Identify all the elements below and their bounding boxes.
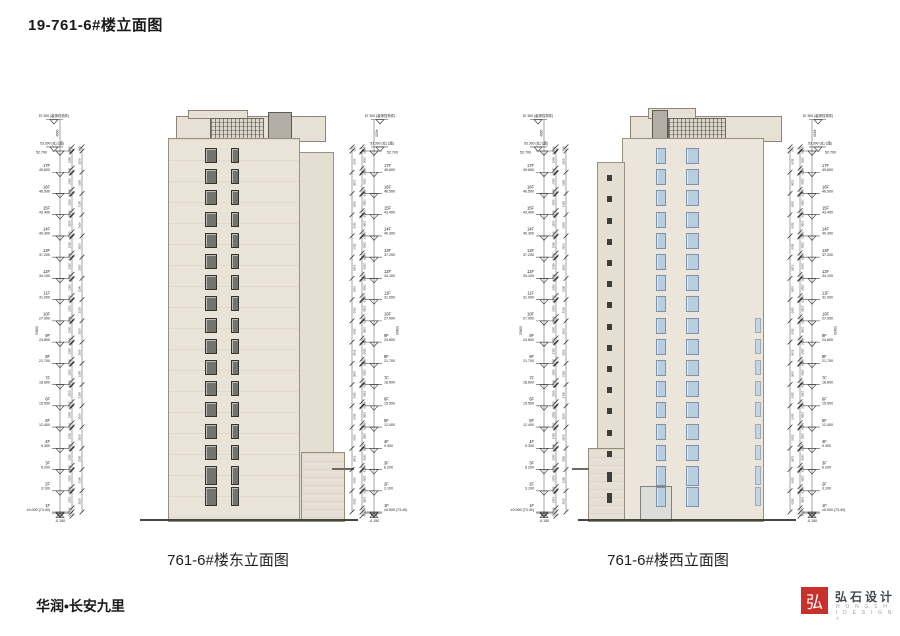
window [607,493,612,503]
svg-text:150: 150 [801,277,805,282]
svg-text:150: 150 [552,467,556,472]
svg-text:52.700: 52.700 [825,151,836,155]
window [755,360,761,375]
svg-text:2350: 2350 [68,496,72,503]
svg-text:49.600: 49.600 [523,168,534,172]
svg-text:6.200: 6.200 [822,465,831,469]
svg-text:2350: 2350 [68,411,72,418]
svg-text:2350: 2350 [552,178,556,185]
window [755,318,761,333]
window [755,466,761,485]
svg-text:3100: 3100 [791,328,795,335]
svg-text:2350: 2350 [552,157,556,164]
svg-text:3100: 3100 [562,477,566,484]
svg-text:3100: 3100 [562,349,566,356]
window [231,190,239,205]
svg-text:2350: 2350 [801,391,805,398]
svg-text:3100: 3100 [78,413,82,420]
logo-name-cn: 弘石设计 [835,588,895,605]
svg-text:21.700: 21.700 [822,359,833,363]
window [656,148,666,164]
svg-text:3100: 3100 [78,243,82,250]
window [205,402,217,417]
svg-text:3100: 3100 [78,179,82,186]
svg-text:2350: 2350 [363,157,367,164]
window [607,345,612,351]
window [686,466,699,486]
window [656,233,666,249]
svg-text:40.300: 40.300 [39,232,50,236]
svg-text:600: 600 [552,507,556,512]
svg-text:150: 150 [363,404,367,409]
window [607,430,612,436]
svg-text:2350: 2350 [68,199,72,206]
svg-text:3100: 3100 [791,307,795,314]
svg-text:3100: 3100 [353,498,357,505]
svg-text:6.200: 6.200 [384,465,393,469]
drawing-sheet: 19-761-6#楼立面图 57.300 (装饰性构件)400053.300 (… [0,0,900,636]
svg-text:40.300: 40.300 [384,232,395,236]
ground-line-east [140,519,358,521]
svg-text:3100: 3100 [353,456,357,463]
svg-text:2350: 2350 [68,178,72,185]
window [607,408,612,414]
svg-text:21.700: 21.700 [384,359,395,363]
svg-text:3100: 3100 [78,328,82,335]
svg-text:3100: 3100 [791,371,795,378]
svg-text:2350: 2350 [68,454,72,461]
svg-text:2350: 2350 [363,306,367,313]
svg-text:49.600: 49.600 [39,168,50,172]
logo-name-en: H O N G S H I D E S I G N + [836,604,896,622]
svg-text:2350: 2350 [363,369,367,376]
svg-text:150: 150 [801,425,805,430]
svg-text:150: 150 [363,213,367,218]
svg-text:150: 150 [68,297,72,302]
svg-text:3100: 3100 [562,370,566,377]
window [231,339,239,354]
svg-text:53.300 (女儿墙): 53.300 (女儿墙) [370,140,394,145]
svg-text:3100: 3100 [78,285,82,292]
svg-text:150: 150 [363,447,367,452]
svg-text:57.300 (装饰性构件): 57.300 (装饰性构件) [365,113,396,118]
svg-text:150: 150 [801,489,805,494]
window [656,296,666,312]
svg-text:±0.000 (73.40): ±0.000 (73.40) [27,508,50,512]
svg-text:3100: 3100 [562,243,566,250]
svg-text:150: 150 [363,340,367,345]
svg-text:150: 150 [552,340,556,345]
window [686,148,699,164]
window [231,212,239,227]
window [656,360,666,376]
svg-text:150: 150 [363,489,367,494]
svg-text:2350: 2350 [801,199,805,206]
window [205,381,217,396]
podium-annex-east [301,452,345,522]
svg-text:150: 150 [801,213,805,218]
svg-text:21.700: 21.700 [39,359,50,363]
svg-text:2350: 2350 [363,412,367,419]
window [231,233,239,248]
roof-equipment-west [652,110,668,141]
svg-text:2350: 2350 [68,305,72,312]
window [205,275,217,290]
dimension-scale-west-right: 57.300 (装饰性构件)400053.300 (女儿墙)52.7006006… [780,100,858,560]
svg-text:-0.150: -0.150 [55,519,65,523]
svg-text:3100: 3100 [353,222,357,229]
svg-text:9.300: 9.300 [41,444,50,448]
caption-west-elevation: 761-6#楼西立面图 [568,549,768,570]
svg-text:3100: 3100 [353,477,357,484]
svg-text:3100: 3100 [791,180,795,187]
svg-text:24.800: 24.800 [822,338,833,342]
svg-text:150: 150 [363,468,367,473]
svg-text:3100: 3100 [78,349,82,356]
svg-text:3100: 3100 [791,265,795,272]
svg-text:2350: 2350 [801,433,805,440]
svg-text:3100: 3100 [78,307,82,314]
svg-text:2350: 2350 [552,454,556,461]
svg-text:9.300: 9.300 [525,444,534,448]
svg-text:150: 150 [552,213,556,218]
svg-text:3100: 3100 [353,243,357,250]
svg-text:150: 150 [801,404,805,409]
svg-text:2350: 2350 [801,263,805,270]
ground-line-west [578,519,796,521]
svg-text:2350: 2350 [801,412,805,419]
window [231,381,239,396]
svg-text:2350: 2350 [801,157,805,164]
svg-text:40.300: 40.300 [822,232,833,236]
window [686,212,699,228]
window [607,387,612,393]
svg-text:150: 150 [801,340,805,345]
window [205,148,217,163]
svg-text:15.500: 15.500 [39,402,50,406]
svg-text:57.300 (装饰性构件): 57.300 (装饰性构件) [803,113,834,118]
window [656,212,666,228]
window [205,212,217,227]
svg-text:24.800: 24.800 [523,338,534,342]
svg-text:24.800: 24.800 [39,338,50,342]
svg-text:57.300 (装饰性构件): 57.300 (装饰性构件) [39,113,70,118]
window [205,339,217,354]
svg-text:46.500: 46.500 [822,189,833,193]
svg-text:34.100: 34.100 [523,274,534,278]
svg-text:3100: 3100 [353,286,357,293]
svg-text:3100: 3100 [353,201,357,208]
svg-text:2350: 2350 [68,348,72,355]
svg-text:12.400: 12.400 [523,423,534,427]
svg-text:600: 600 [363,512,367,517]
svg-text:4000: 4000 [375,130,379,137]
svg-text:3100: 3100 [791,350,795,357]
window [656,169,666,185]
svg-text:150: 150 [68,446,72,451]
window [656,466,666,486]
svg-text:2350: 2350 [801,327,805,334]
window [755,381,761,396]
entrance-canopy-west [572,468,589,470]
svg-text:46.500: 46.500 [523,189,534,193]
page-title: 19-761-6#楼立面图 [28,14,163,35]
window [686,381,699,397]
window [656,487,666,507]
window [231,148,239,163]
window [656,318,666,334]
svg-text:2350: 2350 [801,178,805,185]
svg-text:150: 150 [552,382,556,387]
svg-text:600: 600 [353,147,357,152]
window [607,472,612,482]
window [686,254,699,270]
svg-text:3100: 3100 [353,350,357,357]
window [686,487,699,507]
svg-text:600: 600 [791,147,795,152]
svg-text:150: 150 [363,362,367,367]
window [205,169,217,184]
svg-text:3100: 3100 [78,201,82,208]
svg-text:2350: 2350 [68,220,72,227]
svg-text:2350: 2350 [552,326,556,333]
svg-text:150: 150 [68,382,72,387]
svg-text:27.900: 27.900 [384,317,395,321]
svg-text:150: 150 [68,425,72,430]
svg-text:150: 150 [801,468,805,473]
svg-text:150: 150 [552,425,556,430]
svg-text:600: 600 [552,511,556,516]
svg-text:9.300: 9.300 [384,444,393,448]
svg-text:150: 150 [552,255,556,260]
svg-text:150: 150 [552,319,556,324]
window [231,254,239,269]
window [607,218,612,224]
svg-text:2350: 2350 [363,284,367,291]
window [205,487,217,506]
svg-text:37.200: 37.200 [822,253,833,257]
svg-text:53.300 (女儿墙): 53.300 (女儿墙) [524,140,548,145]
svg-text:43.400: 43.400 [384,211,395,215]
window [205,318,217,333]
window [755,424,761,439]
podium-annex-west [588,448,625,522]
svg-text:3100: 3100 [353,392,357,399]
svg-text:2350: 2350 [363,348,367,355]
svg-text:2350: 2350 [552,284,556,291]
svg-text:2350: 2350 [68,475,72,482]
svg-text:±0.000 (73.40): ±0.000 (73.40) [822,508,845,512]
window [205,296,217,311]
svg-text:31.000: 31.000 [523,295,534,299]
svg-text:2350: 2350 [801,221,805,228]
window [607,260,612,266]
svg-text:34.100: 34.100 [39,274,50,278]
svg-text:2350: 2350 [68,390,72,397]
window [686,169,699,185]
window [231,275,239,290]
svg-text:3100: 3100 [78,434,82,441]
svg-text:34.100: 34.100 [822,274,833,278]
svg-text:2350: 2350 [363,221,367,228]
window [607,451,612,457]
svg-text:150: 150 [363,298,367,303]
svg-text:150: 150 [363,425,367,430]
window [607,281,612,287]
svg-text:31.000: 31.000 [822,295,833,299]
svg-text:150: 150 [68,191,72,196]
svg-text:2350: 2350 [552,263,556,270]
svg-text:150: 150 [68,170,72,175]
window [231,169,239,184]
svg-text:3100: 3100 [791,435,795,442]
svg-text:46.500: 46.500 [39,189,50,193]
svg-text:2350: 2350 [801,497,805,504]
svg-text:3100: 3100 [562,201,566,208]
svg-text:3100: 3100 [78,392,82,399]
svg-text:-0.150: -0.150 [807,519,817,523]
svg-text:40.300: 40.300 [523,232,534,236]
svg-text:4000: 4000 [540,129,544,136]
dimension-scale-east-right: 57.300 (装饰性构件)400053.300 (女儿墙)52.7006006… [342,100,420,560]
svg-text:2350: 2350 [801,306,805,313]
svg-text:3100: 3100 [353,265,357,272]
svg-text:150: 150 [552,149,556,154]
window [607,324,612,330]
svg-text:2350: 2350 [363,327,367,334]
svg-text:2350: 2350 [552,348,556,355]
window [656,254,666,270]
svg-text:150: 150 [801,234,805,239]
svg-text:3100: 3100 [78,370,82,377]
svg-text:43.400: 43.400 [822,211,833,215]
svg-text:43.400: 43.400 [523,211,534,215]
svg-text:57.300 (装饰性构件): 57.300 (装饰性构件) [523,113,554,118]
svg-text:150: 150 [552,276,556,281]
svg-text:3100: 3100 [78,498,82,505]
svg-text:150: 150 [68,319,72,324]
svg-text:3100: 3100 [353,159,357,166]
svg-text:3.100: 3.100 [384,487,393,491]
svg-text:37.200: 37.200 [523,253,534,257]
svg-text:600: 600 [68,507,72,512]
window [656,275,666,291]
svg-text:3100: 3100 [562,328,566,335]
window [607,302,612,308]
project-name: 华润•长安九里 [36,596,125,616]
svg-text:150: 150 [801,362,805,367]
svg-text:150: 150 [552,234,556,239]
svg-text:2350: 2350 [552,475,556,482]
svg-text:3100: 3100 [562,179,566,186]
svg-text:2350: 2350 [68,369,72,376]
svg-text:2350: 2350 [68,433,72,440]
svg-text:12.400: 12.400 [822,423,833,427]
roof-grille-west [668,118,726,140]
svg-text:53400: 53400 [833,326,837,335]
window [231,424,239,439]
svg-text:150: 150 [801,192,805,197]
svg-text:150: 150 [552,446,556,451]
roof-grille-east [210,118,264,140]
svg-text:18.600: 18.600 [822,380,833,384]
svg-text:53400: 53400 [519,326,523,335]
svg-text:3100: 3100 [791,243,795,250]
svg-text:2350: 2350 [363,391,367,398]
svg-text:3100: 3100 [353,413,357,420]
window [205,445,217,460]
svg-text:3100: 3100 [353,180,357,187]
svg-text:27.900: 27.900 [822,317,833,321]
svg-text:2350: 2350 [552,390,556,397]
svg-text:-0.150: -0.150 [369,519,379,523]
svg-text:150: 150 [68,149,72,154]
window [755,445,761,460]
svg-text:150: 150 [801,171,805,176]
svg-text:2350: 2350 [801,242,805,249]
window [231,487,239,506]
svg-text:2350: 2350 [552,433,556,440]
window [231,318,239,333]
svg-text:150: 150 [68,361,72,366]
svg-text:150: 150 [68,255,72,260]
svg-text:3100: 3100 [562,264,566,271]
window [205,360,217,375]
svg-text:53400: 53400 [35,326,39,335]
svg-text:150: 150 [801,298,805,303]
svg-text:3.100: 3.100 [41,487,50,491]
svg-text:600: 600 [562,146,566,151]
svg-text:3100: 3100 [78,477,82,484]
svg-text:2350: 2350 [552,305,556,312]
svg-text:150: 150 [68,340,72,345]
window [231,445,239,460]
window [231,296,239,311]
window [755,339,761,354]
svg-text:2350: 2350 [363,454,367,461]
svg-text:150: 150 [363,171,367,176]
svg-text:2350: 2350 [68,326,72,333]
window [607,239,612,245]
svg-text:12.400: 12.400 [39,423,50,427]
svg-text:150: 150 [363,192,367,197]
svg-text:2350: 2350 [552,199,556,206]
svg-text:53400: 53400 [395,326,399,335]
svg-text:2350: 2350 [552,241,556,248]
svg-text:3100: 3100 [78,455,82,462]
svg-text:52.700: 52.700 [387,151,398,155]
svg-text:2350: 2350 [68,284,72,291]
svg-text:12.400: 12.400 [384,423,395,427]
svg-text:3100: 3100 [78,158,82,165]
window [686,296,699,312]
svg-text:150: 150 [801,447,805,452]
window [205,190,217,205]
window [205,466,217,485]
svg-text:150: 150 [68,213,72,218]
dimension-scale-west-left: 57.300 (装饰性构件)400053.300 (女儿墙)52.7006006… [498,100,576,560]
svg-text:3100: 3100 [791,159,795,166]
svg-text:150: 150 [363,277,367,282]
window [656,339,666,355]
svg-text:3100: 3100 [791,456,795,463]
window [656,402,666,418]
window [607,196,612,202]
svg-text:150: 150 [68,404,72,409]
window [607,366,612,372]
window [231,360,239,375]
roof-equipment-east [268,112,292,141]
